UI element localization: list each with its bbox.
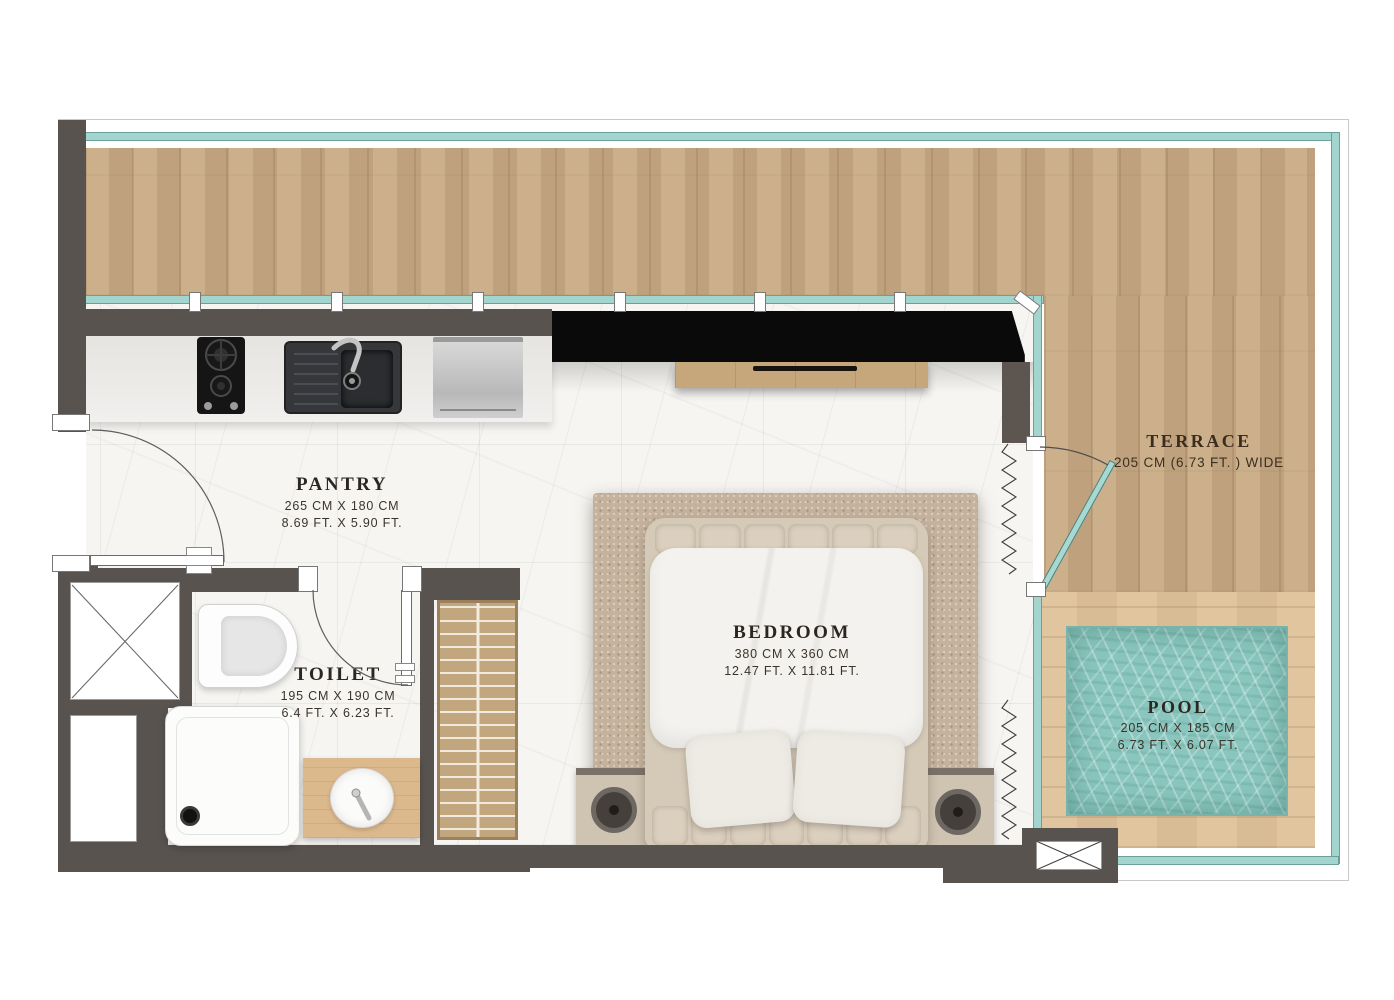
- sink-basin: [341, 350, 393, 408]
- duct-riser: [70, 715, 137, 842]
- outer-frame-right: [1348, 119, 1349, 881]
- tv-console: [675, 362, 928, 388]
- pool-dim-cm: 205 CM X 185 CM: [1118, 721, 1239, 735]
- shaft-symbol: [70, 582, 180, 700]
- lamp-left: [591, 787, 637, 833]
- wash-basin: [330, 768, 394, 828]
- wall-bottom-c: [943, 845, 1022, 883]
- cooktop: [197, 337, 245, 414]
- lamp-right: [935, 789, 981, 835]
- room-label-pantry: PANTRY 265 CM X 180 CM 8.69 FT. X 5.90 F…: [282, 474, 403, 530]
- bedroom-name: BEDROOM: [724, 622, 859, 644]
- tv-feature-wall: [552, 311, 1033, 362]
- pillow-left: [684, 729, 797, 830]
- pool-dim-ft: 6.73 FT. X 6.07 FT.: [1118, 738, 1239, 752]
- wardrobe: [437, 600, 518, 840]
- bedroom-dim-cm: 380 CM X 360 CM: [724, 647, 859, 661]
- entry-door-stop-1: [186, 547, 212, 556]
- window-mullion-5: [754, 292, 766, 312]
- wall-bottom-a: [58, 845, 530, 872]
- entry-jamb-top: [52, 414, 90, 431]
- toilet-jamb-left: [298, 566, 318, 592]
- wall-toilet-wardrobe-divider: [420, 592, 434, 845]
- bedroom-dim-ft: 12.47 FT. X 11.81 FT.: [724, 664, 859, 678]
- glass-wall-right-upper: [1033, 295, 1042, 447]
- toilet-jamb-right: [402, 566, 422, 592]
- window-mullion-2: [331, 292, 343, 312]
- wall-stub-right: [1002, 362, 1030, 443]
- outer-frame-top: [58, 119, 1349, 120]
- wall-bottom-b: [530, 845, 943, 868]
- console-handle: [753, 366, 857, 371]
- sink-drainboard: [294, 353, 338, 405]
- entry-jamb-bottom: [52, 555, 90, 572]
- toilet-dim-cm: 195 CM X 190 CM: [281, 689, 396, 703]
- column-symbol: [1036, 841, 1102, 870]
- room-label-pool: POOL 205 CM X 185 CM 6.73 FT. X 6.07 FT.: [1118, 697, 1239, 752]
- pantry-name: PANTRY: [282, 474, 403, 496]
- wall-top-band: [58, 309, 552, 336]
- room-label-toilet: TOILET 195 CM X 190 CM 6.4 FT. X 6.23 FT…: [281, 664, 396, 720]
- window-mullion-3: [472, 292, 484, 312]
- toilet-door-stop-1: [395, 663, 415, 671]
- toilet-name: TOILET: [281, 664, 396, 686]
- glass-wall-right-lower: [1033, 588, 1042, 845]
- terrace-name: TERRACE: [1114, 431, 1284, 452]
- room-label-bedroom: BEDROOM 380 CM X 360 CM 12.47 FT. X 11.8…: [724, 622, 859, 678]
- dishwasher: [433, 337, 523, 418]
- wall-wardrobe-top: [434, 568, 520, 600]
- room-label-terrace: TERRACE 205 CM (6.73 FT. ) WIDE: [1114, 431, 1284, 470]
- window-mullion-6: [894, 292, 906, 312]
- railing-right: [1331, 132, 1340, 864]
- wc-seat: [221, 616, 287, 676]
- toilet-door-leaf: [401, 590, 412, 686]
- pool-name: POOL: [1118, 697, 1239, 718]
- floor-plan: PANTRY 265 CM X 180 CM 8.69 FT. X 5.90 F…: [0, 0, 1394, 1000]
- pantry-dim-cm: 265 CM X 180 CM: [282, 499, 403, 513]
- railing-top: [83, 132, 1339, 141]
- toilet-dim-ft: 6.4 FT. X 6.23 FT.: [281, 706, 396, 720]
- pillow-right: [792, 729, 906, 828]
- window-mullion-4: [614, 292, 626, 312]
- terrace-dim: 205 CM (6.73 FT. ) WIDE: [1114, 455, 1284, 470]
- shower-drain: [180, 806, 200, 826]
- kitchen-sink: [284, 341, 402, 414]
- terrace-door-jamb-bottom: [1026, 582, 1046, 597]
- terrace-floor-top: [85, 148, 1315, 296]
- terrace-door-jamb-top: [1026, 436, 1046, 451]
- window-mullion-1: [189, 292, 201, 312]
- pantry-dim-ft: 8.69 FT. X 5.90 FT.: [282, 516, 403, 530]
- toilet-door-stop-2: [395, 675, 415, 683]
- entry-door-stop-2: [186, 565, 212, 574]
- wall-left-pillar: [58, 120, 86, 432]
